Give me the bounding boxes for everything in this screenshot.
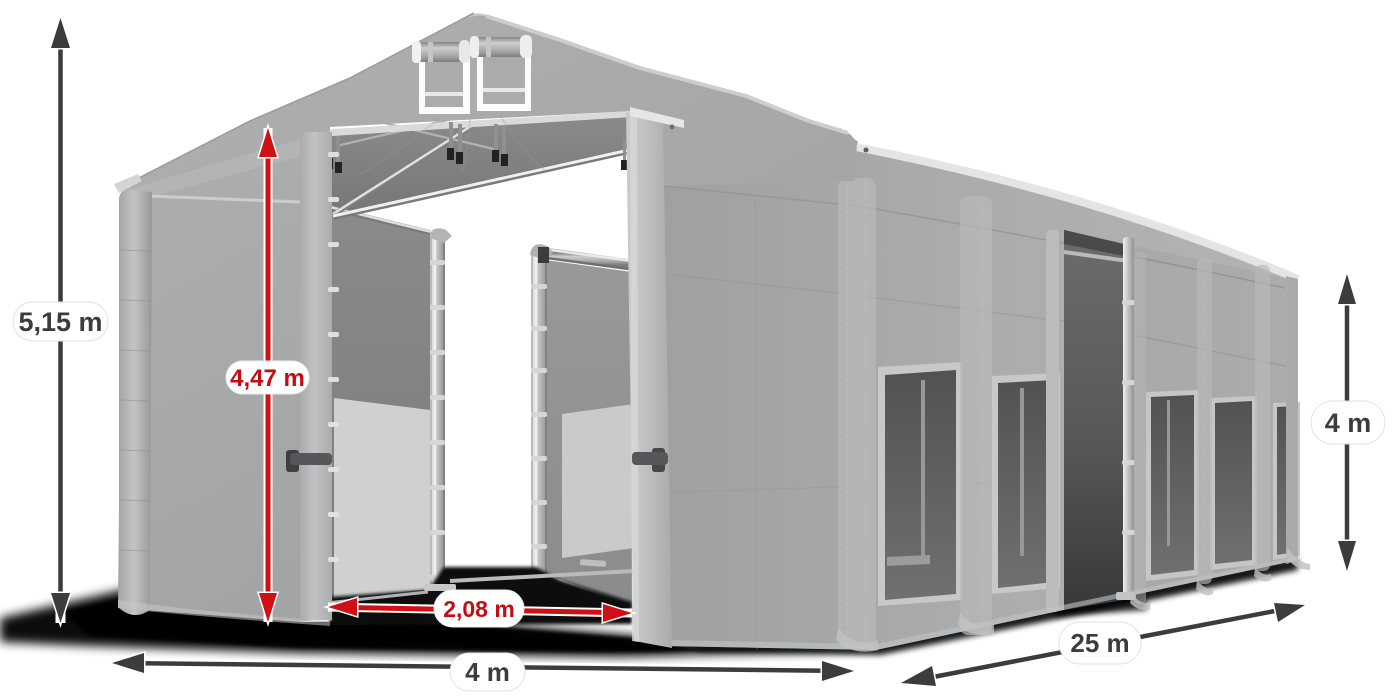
svg-text:2,08 m: 2,08 m bbox=[443, 596, 515, 622]
svg-text:25 m: 25 m bbox=[1070, 628, 1129, 658]
svg-text:4 m: 4 m bbox=[1325, 408, 1372, 438]
svg-text:4,47 m: 4,47 m bbox=[230, 365, 305, 392]
svg-text:4 m: 4 m bbox=[465, 657, 510, 687]
svg-text:5,15 m: 5,15 m bbox=[18, 307, 102, 337]
